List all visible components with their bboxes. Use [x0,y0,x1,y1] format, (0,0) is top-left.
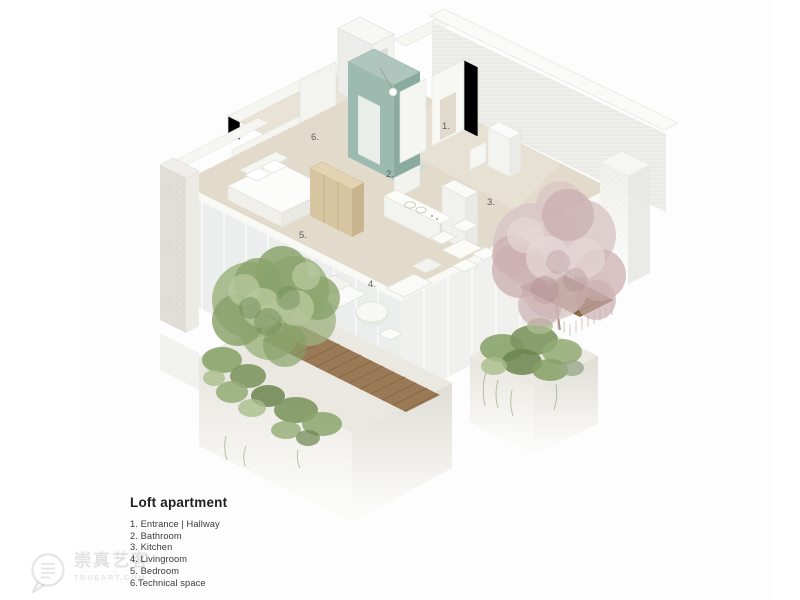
legend-title: Loft apartment [130,495,227,510]
right-planter [470,318,598,454]
pendant-lamp [389,88,397,96]
plan-label-1: 1. [442,121,450,132]
axonometric-illustration: 1. 2. 3. 4. 5. 6. [0,0,800,600]
watermark-site: TRUEART.COM [74,573,150,582]
screenshot-root: 1. 2. 3. 4. 5. 6. Loft apartment 1. Entr… [0,0,800,600]
legend-item: 1. Entrance | Hallway [130,519,227,531]
watermark-cn: 崇真艺客 [74,551,150,571]
coffee-table [356,302,388,322]
plan-label-5: 5. [299,230,307,241]
watermark: 崇真艺客 TRUEART.COM [28,551,150,595]
plan-label-6: 6. [311,132,319,143]
speech-bubble-document-icon [28,551,68,595]
plan-label-2: 2. [386,169,394,180]
plan-label-4: 4. [368,279,376,290]
watermark-text: 崇真艺客 TRUEART.COM [74,551,150,582]
legend-item: 2. Bathroom [130,531,227,543]
plan-label-3: 3. [487,197,495,208]
concrete-pillar [160,158,199,390]
